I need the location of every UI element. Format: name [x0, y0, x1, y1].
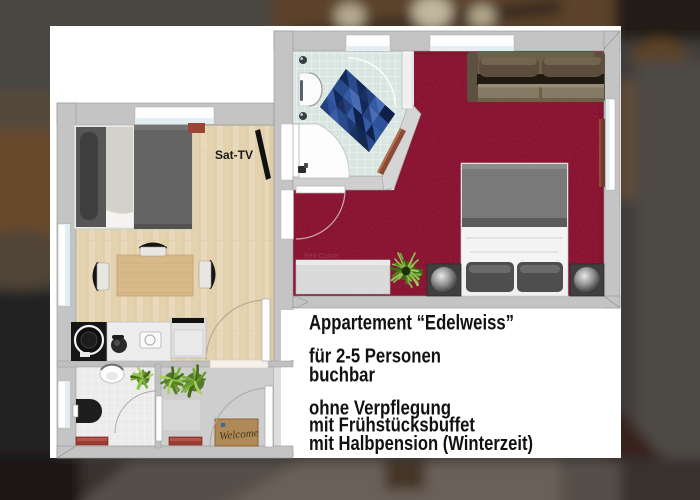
svg-text:mit Halbpension (Winterzeit): mit Halbpension (Winterzeit): [309, 433, 533, 455]
svg-text:Bett-Couch: Bett-Couch: [304, 253, 339, 260]
svg-text:buchbar: buchbar: [309, 365, 375, 387]
svg-text:Sat-TV: Sat-TV: [215, 148, 253, 162]
svg-text:Appartement “Edelweiss”: Appartement “Edelweiss”: [309, 312, 514, 335]
